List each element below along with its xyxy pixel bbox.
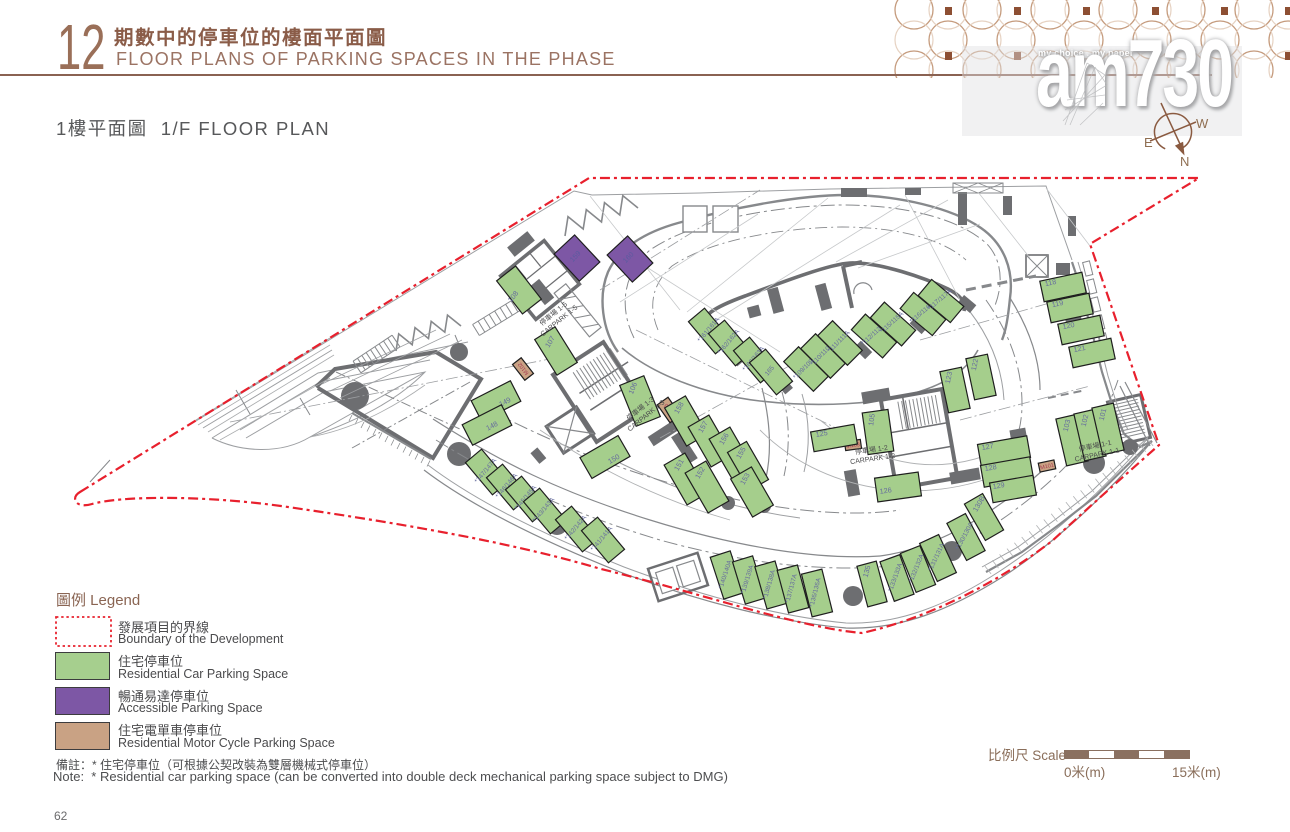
svg-text:105: 105 <box>866 413 877 426</box>
svg-text:126: 126 <box>879 485 892 496</box>
